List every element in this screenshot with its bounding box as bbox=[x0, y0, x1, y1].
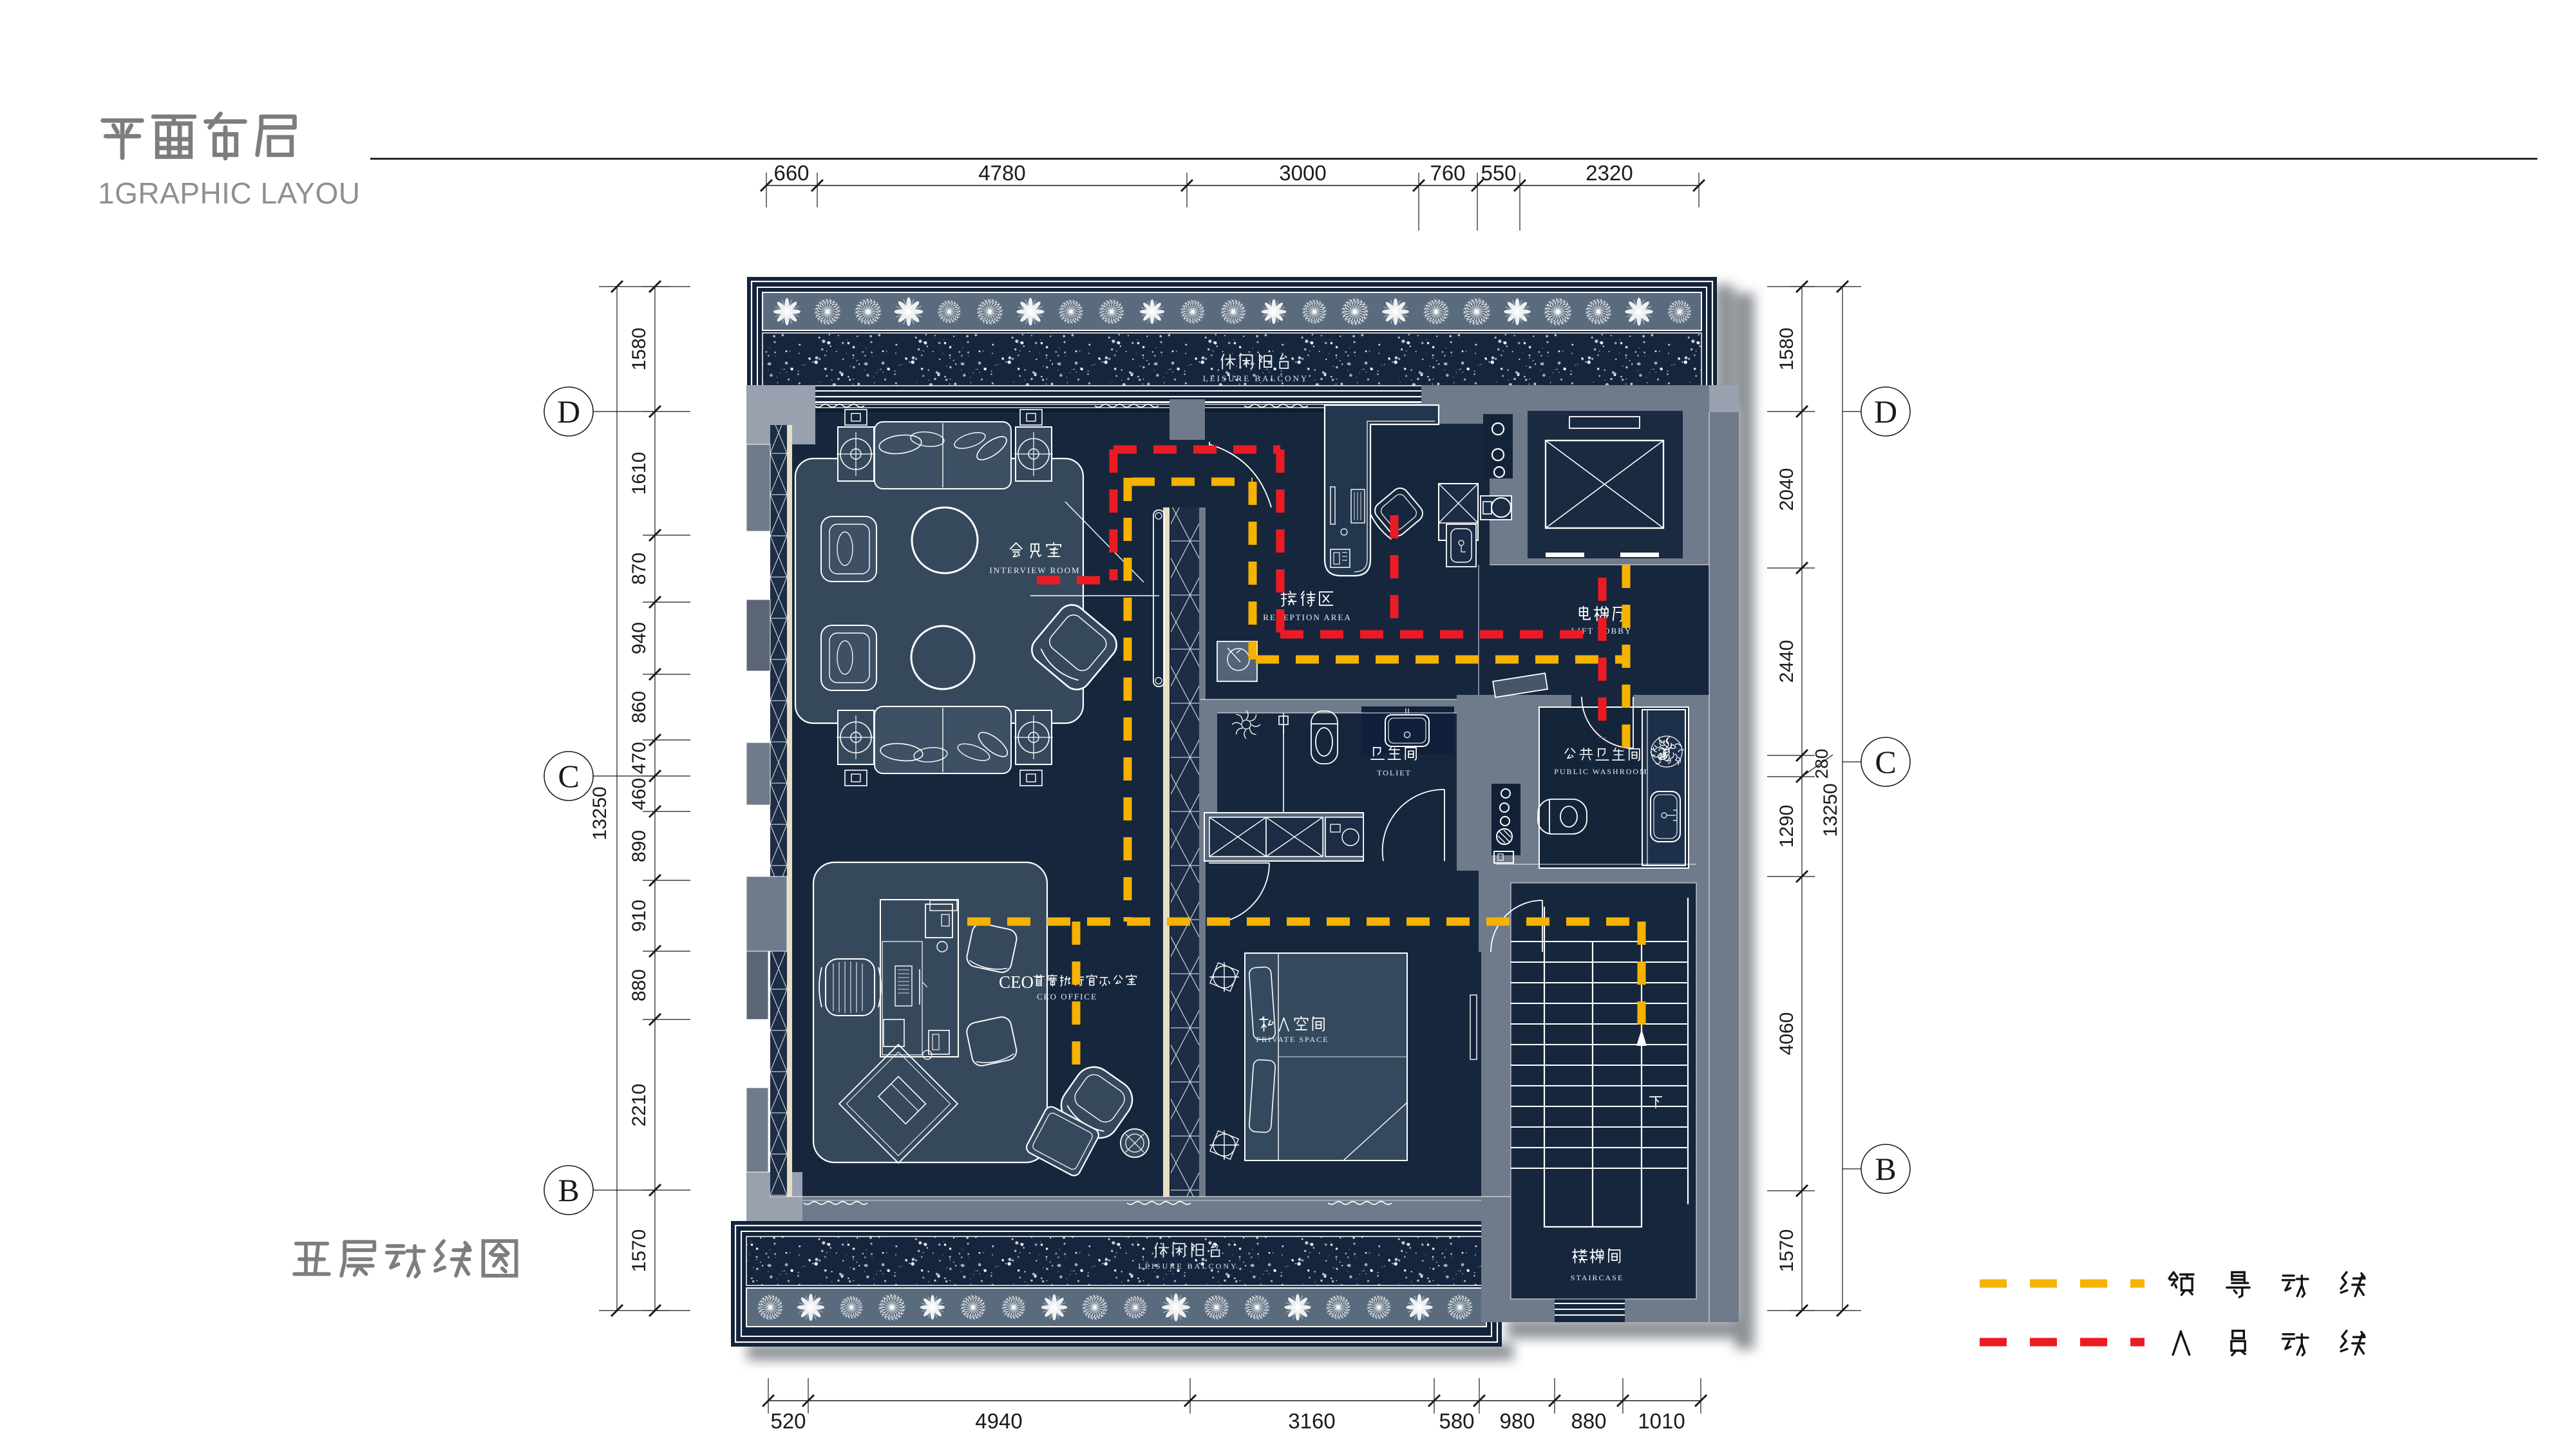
svg-text:760: 760 bbox=[1430, 161, 1465, 185]
svg-text:1570: 1570 bbox=[629, 1229, 650, 1273]
svg-text:580: 580 bbox=[1439, 1409, 1474, 1433]
svg-text:STAIRCASE: STAIRCASE bbox=[1571, 1273, 1624, 1282]
svg-text:4060: 4060 bbox=[1776, 1012, 1797, 1056]
svg-text:2320: 2320 bbox=[1586, 161, 1633, 185]
svg-text:D: D bbox=[557, 393, 580, 430]
svg-text:13250: 13250 bbox=[1820, 783, 1841, 837]
svg-text:PRIVATE SPACE: PRIVATE SPACE bbox=[1256, 1035, 1329, 1044]
svg-text:660: 660 bbox=[773, 161, 809, 185]
svg-text:910: 910 bbox=[629, 900, 650, 932]
svg-text:1610: 1610 bbox=[629, 452, 650, 495]
svg-text:1010: 1010 bbox=[1638, 1409, 1685, 1433]
svg-text:280: 280 bbox=[1812, 749, 1832, 779]
svg-text:PUBLIC WASHROOM: PUBLIC WASHROOM bbox=[1554, 767, 1647, 776]
svg-text:LEISURE BALCONY: LEISURE BALCONY bbox=[1138, 1262, 1238, 1271]
svg-text:1GRAPHIC LAYOU: 1GRAPHIC LAYOU bbox=[98, 176, 360, 210]
svg-text:13250: 13250 bbox=[589, 786, 611, 840]
svg-text:520: 520 bbox=[770, 1409, 806, 1433]
svg-text:890: 890 bbox=[629, 830, 650, 862]
svg-text:980: 980 bbox=[1499, 1409, 1535, 1433]
svg-text:880: 880 bbox=[629, 969, 650, 1001]
svg-text:860: 860 bbox=[629, 691, 650, 723]
svg-text:1570: 1570 bbox=[1776, 1229, 1797, 1273]
svg-text:2040: 2040 bbox=[1776, 468, 1797, 511]
svg-text:B: B bbox=[558, 1172, 579, 1208]
svg-text:TOLIET: TOLIET bbox=[1377, 768, 1412, 777]
svg-text:4780: 4780 bbox=[978, 161, 1025, 185]
svg-text:1290: 1290 bbox=[1776, 805, 1797, 848]
svg-text:2210: 2210 bbox=[629, 1084, 650, 1127]
svg-text:LEISURE BALCONY: LEISURE BALCONY bbox=[1203, 374, 1309, 383]
svg-text:C: C bbox=[558, 758, 579, 794]
svg-text:1580: 1580 bbox=[629, 328, 650, 371]
svg-text:3160: 3160 bbox=[1288, 1409, 1335, 1433]
svg-text:880: 880 bbox=[1571, 1409, 1606, 1433]
svg-text:2440: 2440 bbox=[1776, 640, 1797, 683]
svg-text:550: 550 bbox=[1481, 161, 1516, 185]
svg-text:940: 940 bbox=[629, 622, 650, 654]
svg-text:470: 470 bbox=[629, 742, 650, 774]
svg-text:460: 460 bbox=[629, 778, 650, 810]
svg-text:INTERVIEW ROOM: INTERVIEW ROOM bbox=[989, 565, 1080, 575]
svg-text:C: C bbox=[1875, 744, 1896, 780]
svg-text:CEO OFFICE: CEO OFFICE bbox=[1037, 992, 1097, 1001]
svg-text:D: D bbox=[1874, 393, 1897, 430]
svg-text:CEO: CEO bbox=[999, 972, 1034, 992]
svg-text:870: 870 bbox=[629, 553, 650, 585]
svg-text:1580: 1580 bbox=[1776, 328, 1797, 371]
svg-text:B: B bbox=[1875, 1151, 1896, 1187]
svg-text:4940: 4940 bbox=[975, 1409, 1022, 1433]
svg-text:3000: 3000 bbox=[1279, 161, 1326, 185]
